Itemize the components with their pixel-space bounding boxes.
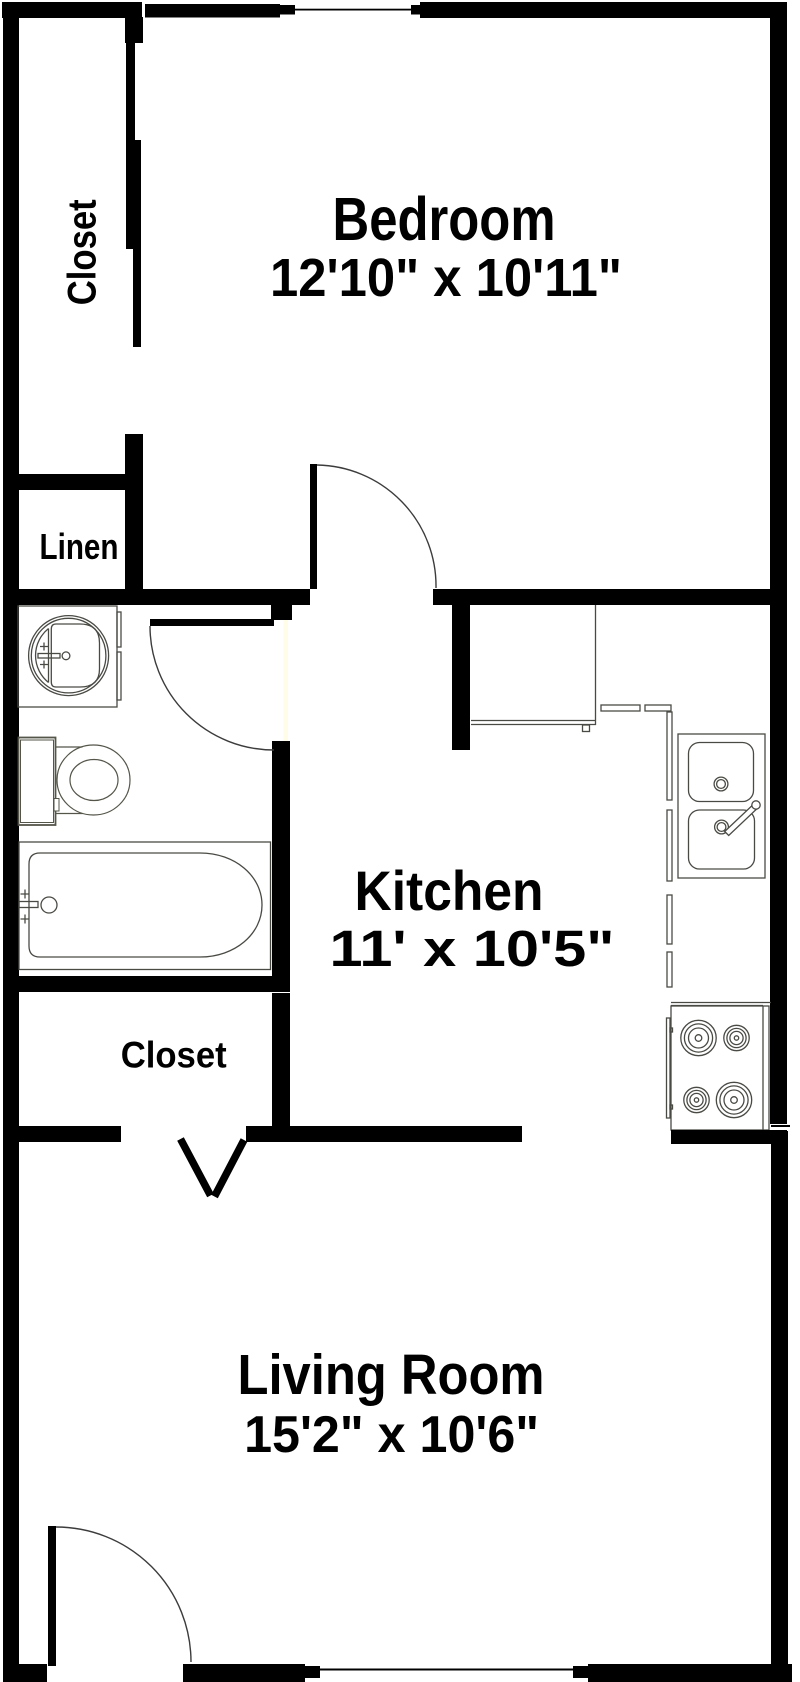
svg-text:Closet: Closet	[61, 199, 105, 305]
svg-text:Bedroom: Bedroom	[333, 185, 556, 253]
svg-text:Linen: Linen	[40, 526, 119, 567]
svg-text:Kitchen: Kitchen	[355, 859, 544, 922]
svg-text:15'2" x 10'6": 15'2" x 10'6"	[244, 1406, 539, 1464]
svg-text:Living Room: Living Room	[238, 1343, 545, 1407]
svg-text:12'10" x 10'11": 12'10" x 10'11"	[270, 248, 622, 308]
svg-text:11' x 10'5": 11' x 10'5"	[330, 920, 615, 977]
svg-text:Closet: Closet	[121, 1035, 227, 1076]
